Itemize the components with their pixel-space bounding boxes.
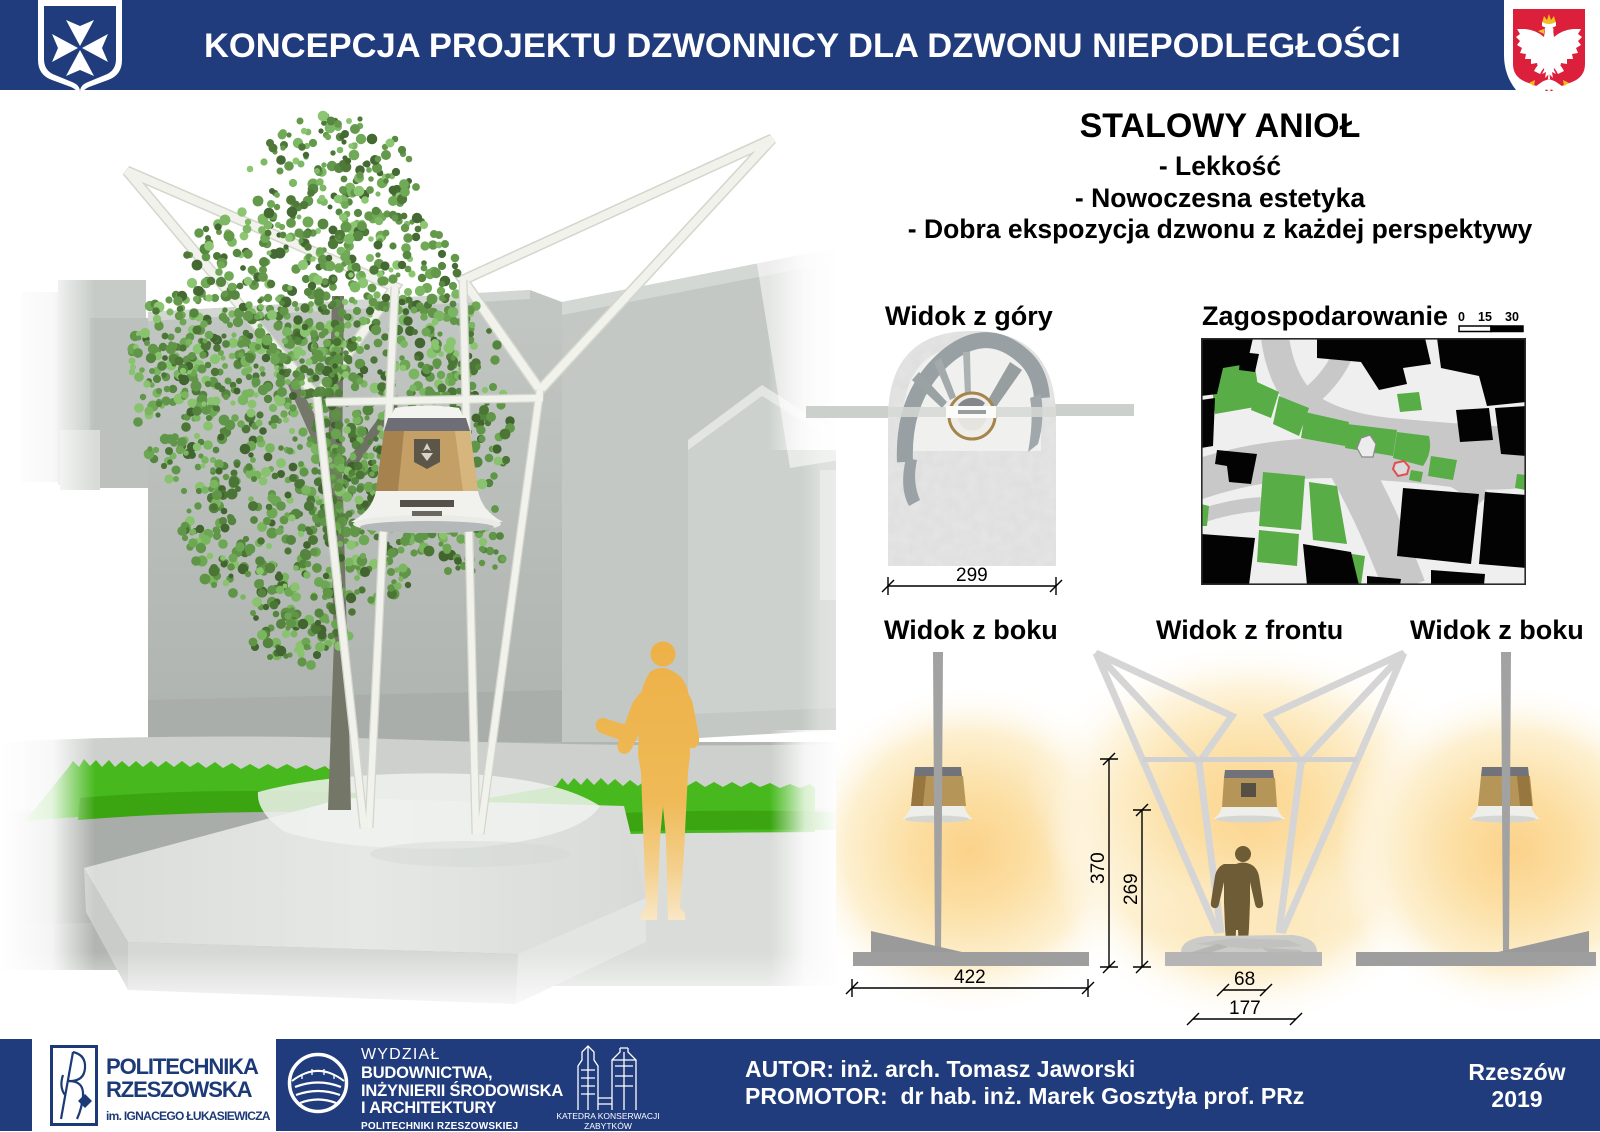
svg-text:0: 0 (1458, 310, 1465, 324)
svg-text:269: 269 (1121, 873, 1142, 905)
svg-text:68: 68 (1234, 969, 1255, 990)
svg-text:177: 177 (1229, 998, 1261, 1019)
svg-text:370: 370 (1088, 852, 1109, 884)
svg-text:422: 422 (954, 967, 986, 988)
svg-text:15: 15 (1478, 310, 1492, 324)
svg-text:299: 299 (956, 565, 988, 586)
svg-text:30: 30 (1505, 310, 1519, 324)
